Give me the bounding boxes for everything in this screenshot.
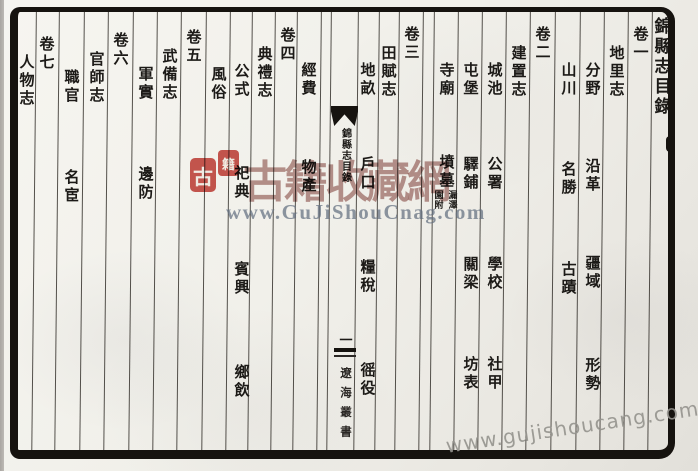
red-seal-icon: 籍 xyxy=(218,150,239,176)
scanned-page: 錦縣志目錄 一 遼海叢書 錦縣志目錄卷一地里志分野沿革疆域形勢山川名勝古蹟卷二建… xyxy=(0,0,698,471)
red-seal-icon: 古 xyxy=(190,158,216,192)
border-ink-blot xyxy=(666,136,675,152)
page-border xyxy=(10,7,675,459)
watermark-center-url: www.GuJiShouCnag.com xyxy=(226,200,486,225)
